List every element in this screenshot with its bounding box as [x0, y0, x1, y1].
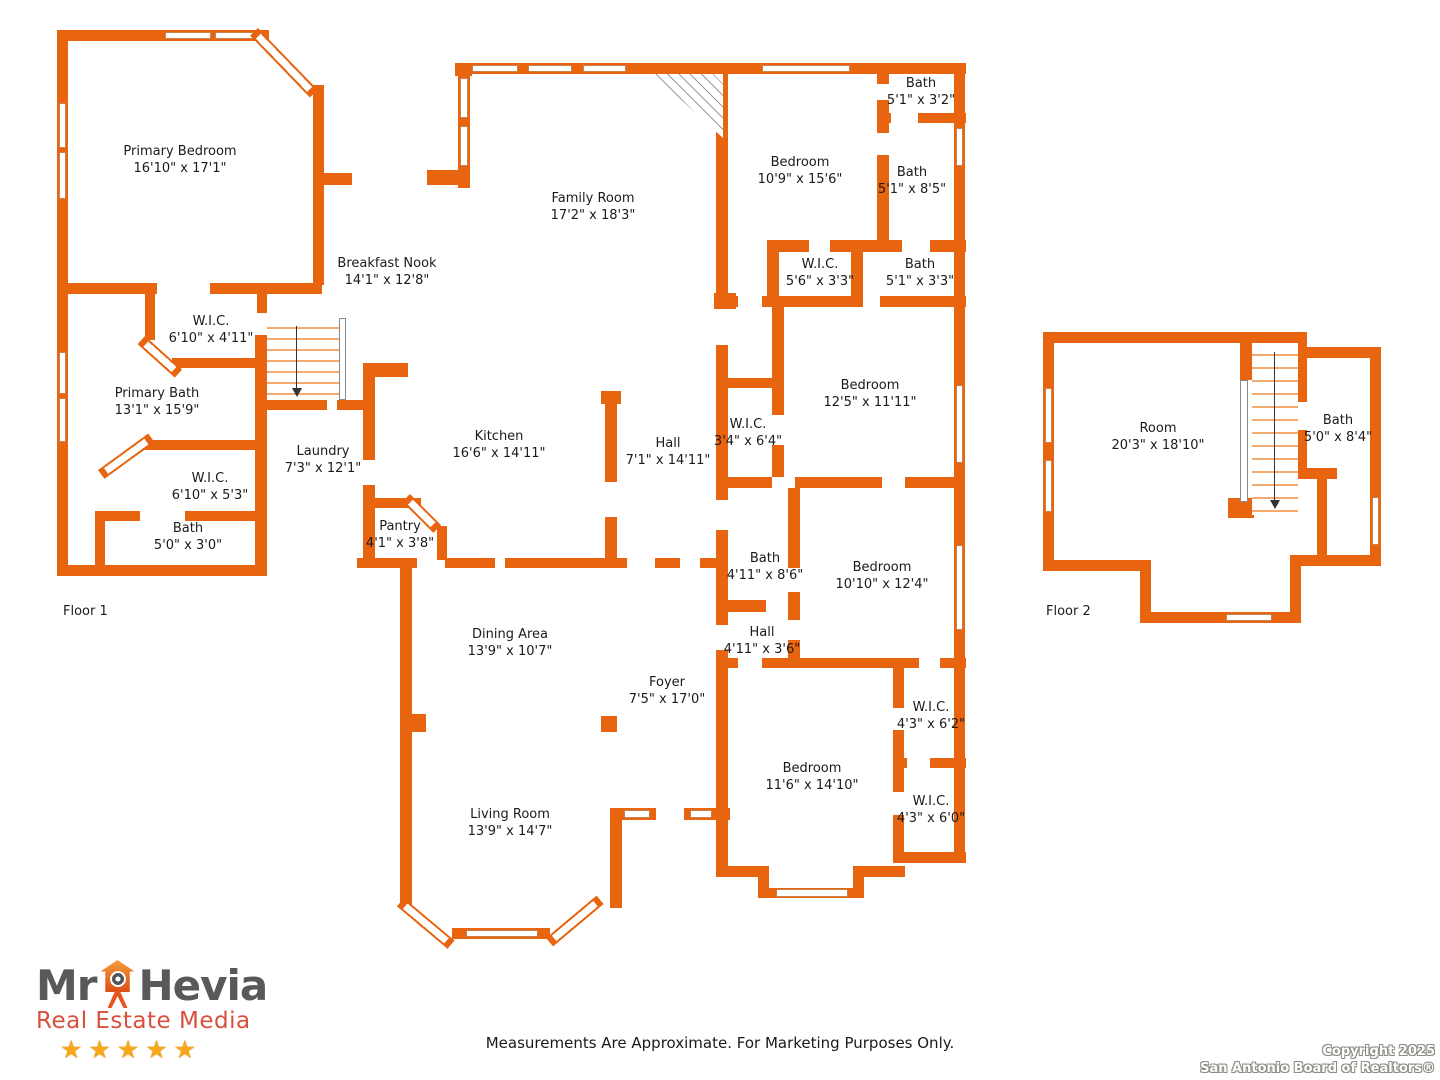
wall-segment	[412, 714, 426, 732]
room-label: Kitchen16'6" x 14'11"	[453, 429, 546, 463]
room-dimensions: 5'0" x 8'4"	[1304, 430, 1372, 447]
window	[583, 65, 626, 72]
room-label: W.I.C.6'10" x 5'3"	[172, 471, 248, 505]
room-dimensions: 3'4" x 6'4"	[714, 434, 782, 451]
window	[59, 103, 66, 148]
wall-segment	[877, 123, 889, 133]
wall-segment	[265, 400, 313, 410]
floor-caption: Floor 2	[1046, 604, 1091, 619]
room-label: W.I.C.5'6" x 3'3"	[786, 257, 854, 291]
room-label: Breakfast Nook14'1" x 12'8"	[337, 256, 436, 290]
window	[956, 385, 963, 463]
room-name: W.I.C.	[897, 794, 965, 811]
wall-segment	[788, 592, 800, 620]
wall-segment	[605, 517, 617, 562]
window	[956, 545, 963, 630]
room-name: Dining Area	[468, 627, 553, 644]
wall-segment	[1140, 612, 1301, 623]
room-label: W.I.C.6'10" x 4'11"	[169, 314, 254, 348]
window	[1045, 460, 1052, 512]
room-label: W.I.C.4'3" x 6'0"	[897, 794, 965, 828]
room-name: Primary Bath	[115, 386, 200, 403]
room-name: Bath	[1304, 413, 1372, 430]
room-name: W.I.C.	[897, 700, 965, 717]
wall-segment	[772, 307, 784, 415]
room-name: Bath	[154, 521, 222, 538]
wall-segment	[716, 658, 738, 668]
room-name: W.I.C.	[786, 257, 854, 274]
room-label: Bath4'11" x 8'6"	[727, 551, 803, 585]
room-name: Bath	[727, 551, 803, 568]
floor-caption: Floor 1	[63, 604, 108, 619]
wall-segment	[172, 358, 268, 368]
wall-segment	[795, 477, 882, 488]
window	[1226, 614, 1272, 621]
wall-segment	[57, 283, 157, 294]
wall-segment	[954, 63, 965, 863]
house-camera-icon	[99, 960, 137, 1010]
window	[776, 889, 848, 897]
room-dimensions: 5'1" x 8'5"	[878, 182, 946, 199]
room-dimensions: 4'11" x 8'6"	[727, 568, 803, 585]
room-label: Primary Bedroom16'10" x 17'1"	[123, 144, 236, 178]
wall-segment	[1295, 347, 1381, 358]
room-dimensions: 16'6" x 14'11"	[453, 446, 546, 463]
wall-segment	[1295, 555, 1381, 566]
room-name: Hall	[626, 436, 711, 453]
room-name: Kitchen	[453, 429, 546, 446]
window	[690, 810, 712, 818]
wall-segment	[313, 85, 324, 185]
wall-segment	[762, 296, 857, 307]
room-name: Breakfast Nook	[337, 256, 436, 273]
room-dimensions: 7'5" x 17'0"	[629, 692, 705, 709]
room-label: Bedroom10'10" x 12'4"	[836, 560, 929, 594]
room-name: Family Room	[551, 191, 636, 208]
room-name: Bedroom	[836, 560, 929, 577]
room-label: Living Room13'9" x 14'7"	[468, 807, 553, 841]
wall-segment	[728, 600, 766, 612]
window	[1045, 388, 1052, 443]
wall-segment	[893, 730, 904, 758]
staircase	[267, 318, 339, 400]
corner-staircase	[653, 74, 723, 138]
room-dimensions: 5'1" x 3'2"	[887, 93, 955, 110]
wall-segment	[313, 183, 324, 285]
brand-name-part2: Hevia	[139, 965, 268, 1007]
wall-segment	[716, 477, 772, 488]
room-label: Bedroom12'5" x 11'11"	[824, 378, 917, 412]
window	[460, 78, 468, 118]
camera-aperture-icon	[110, 971, 126, 987]
tripod-icon	[108, 991, 128, 1008]
window	[59, 398, 66, 442]
room-name: Pantry	[366, 519, 434, 536]
stair-arrow-line	[296, 326, 297, 388]
room-name: Foyer	[629, 675, 705, 692]
room-dimensions: 13'1" x 15'9"	[115, 403, 200, 420]
copyright-line1: Copyright 2025	[1200, 1044, 1435, 1061]
room-dimensions: 13'9" x 10'7"	[468, 644, 553, 661]
wall-segment	[1295, 468, 1337, 479]
wall-segment	[400, 563, 412, 908]
room-dimensions: 4'3" x 6'0"	[897, 811, 965, 828]
room-name: Bedroom	[766, 761, 859, 778]
diagonal-wall	[397, 898, 455, 949]
room-label: Room20'3" x 18'10"	[1112, 421, 1205, 455]
room-label: Laundry7'3" x 12'1"	[285, 444, 361, 478]
stair-stringer	[339, 318, 346, 400]
wall-segment	[255, 525, 267, 560]
wall-segment	[605, 404, 617, 482]
wall-segment	[445, 558, 495, 568]
window	[624, 810, 650, 818]
wall-segment	[363, 363, 375, 460]
room-dimensions: 16'10" x 17'1"	[123, 161, 236, 178]
room-label: Foyer7'5" x 17'0"	[629, 675, 705, 709]
room-dimensions: 10'9" x 15'6"	[758, 172, 843, 189]
room-label: Bath5'1" x 3'3"	[886, 257, 954, 291]
wall-segment	[655, 558, 680, 568]
room-dimensions: 11'6" x 14'10"	[766, 778, 859, 795]
brand-tagline: Real Estate Media	[36, 1008, 267, 1034]
room-label: Bath5'1" x 3'2"	[887, 76, 955, 110]
wall-segment	[337, 400, 363, 410]
room-name: W.I.C.	[172, 471, 248, 488]
window	[165, 32, 211, 39]
room-label: Primary Bath13'1" x 15'9"	[115, 386, 200, 420]
window	[956, 128, 963, 166]
wall-segment	[505, 558, 627, 568]
diagonal-wall	[250, 28, 318, 98]
stair-stringer	[1240, 380, 1248, 502]
room-dimensions: 7'1" x 14'11"	[626, 453, 711, 470]
wall-segment	[1317, 477, 1327, 557]
wall-segment	[1290, 555, 1301, 623]
room-dimensions: 4'3" x 6'2"	[897, 717, 965, 734]
room-dimensions: 12'5" x 11'11"	[824, 395, 917, 412]
room-name: Bedroom	[824, 378, 917, 395]
room-label: Dining Area13'9" x 10'7"	[468, 627, 553, 661]
wall-segment	[716, 296, 738, 307]
wall-segment	[145, 288, 155, 340]
wall-segment	[1043, 560, 1151, 571]
copyright-line2: San Antonio Board of Realtors®	[1200, 1061, 1435, 1078]
staircase	[1252, 343, 1298, 515]
window	[466, 930, 538, 937]
room-dimensions: 13'9" x 14'7"	[468, 824, 553, 841]
room-name: Hall	[724, 625, 800, 642]
room-name: Bath	[886, 257, 954, 274]
wall-segment	[437, 526, 447, 560]
room-label: Family Room17'2" x 18'3"	[551, 191, 636, 225]
room-dimensions: 4'1" x 3'8"	[366, 536, 434, 553]
room-name: Room	[1112, 421, 1205, 438]
window	[528, 65, 572, 72]
wall-segment	[610, 818, 622, 908]
room-label: Bath5'0" x 8'4"	[1304, 413, 1372, 447]
room-name: W.I.C.	[714, 417, 782, 434]
wall-segment	[257, 283, 267, 313]
window	[1372, 497, 1379, 545]
wall-segment	[601, 716, 617, 732]
wall-segment	[1043, 332, 1295, 343]
room-name: Living Room	[468, 807, 553, 824]
wall-segment	[365, 363, 408, 377]
brand-name-part1: Mr	[36, 965, 97, 1007]
window	[460, 126, 468, 166]
wall-segment	[145, 440, 260, 450]
stair-arrow-head	[1270, 500, 1280, 509]
window	[59, 352, 66, 394]
wall-segment	[95, 511, 105, 565]
room-dimensions: 5'6" x 3'3"	[786, 274, 854, 291]
room-dimensions: 20'3" x 18'10"	[1112, 438, 1205, 455]
room-name: Primary Bedroom	[123, 144, 236, 161]
brand-name: Mr Hevia	[36, 960, 267, 1007]
wall-segment	[877, 113, 891, 123]
room-name: Bath	[878, 165, 946, 182]
room-label: Hall7'1" x 14'11"	[626, 436, 711, 470]
room-label: W.I.C.4'3" x 6'2"	[897, 700, 965, 734]
stair-arrow-line	[1274, 352, 1275, 500]
room-label: Bath5'0" x 3'0"	[154, 521, 222, 555]
room-dimensions: 10'10" x 12'4"	[836, 577, 929, 594]
room-dimensions: 6'10" x 4'11"	[169, 331, 254, 348]
copyright-text: Copyright 2025 San Antonio Board of Real…	[1200, 1044, 1435, 1078]
room-label: Bedroom10'9" x 15'6"	[758, 155, 843, 189]
wall-segment	[601, 391, 621, 404]
diagonal-wall	[98, 434, 155, 479]
room-label: Pantry4'1" x 3'8"	[366, 519, 434, 553]
room-name: Laundry	[285, 444, 361, 461]
wall-segment	[255, 408, 267, 498]
room-label: Bath5'1" x 8'5"	[878, 165, 946, 199]
room-dimensions: 5'1" x 3'3"	[886, 274, 954, 291]
wall-segment	[57, 565, 262, 576]
room-dimensions: 17'2" x 18'3"	[551, 208, 636, 225]
room-dimensions: 4'11" x 3'6"	[724, 642, 800, 659]
wall-segment	[893, 767, 904, 792]
wall-segment	[722, 378, 778, 388]
room-dimensions: 6'10" x 5'3"	[172, 488, 248, 505]
wall-segment	[830, 240, 902, 252]
window	[59, 152, 66, 199]
wall-segment	[427, 170, 468, 185]
wall-segment	[185, 511, 260, 521]
room-name: Bath	[887, 76, 955, 93]
room-dimensions: 5'0" x 3'0"	[154, 538, 222, 555]
room-label: W.I.C.3'4" x 6'4"	[714, 417, 782, 451]
room-label: Bedroom11'6" x 14'10"	[766, 761, 859, 795]
room-label: Hall4'11" x 3'6"	[724, 625, 800, 659]
wall-segment	[716, 650, 728, 866]
room-dimensions: 7'3" x 12'1"	[285, 461, 361, 478]
wall-segment	[762, 658, 919, 668]
floor-plan-page: Floor 1Primary Bedroom16'10" x 17'1"Fami…	[0, 0, 1440, 1080]
window	[472, 65, 518, 72]
window	[762, 65, 850, 72]
wall-segment	[1043, 332, 1054, 571]
room-name: Bedroom	[758, 155, 843, 172]
room-dimensions: 14'1" x 12'8"	[337, 273, 436, 290]
room-name: W.I.C.	[169, 314, 254, 331]
diagonal-wall	[546, 896, 604, 947]
wall-segment	[1240, 332, 1252, 380]
stair-arrow-head	[292, 388, 302, 397]
